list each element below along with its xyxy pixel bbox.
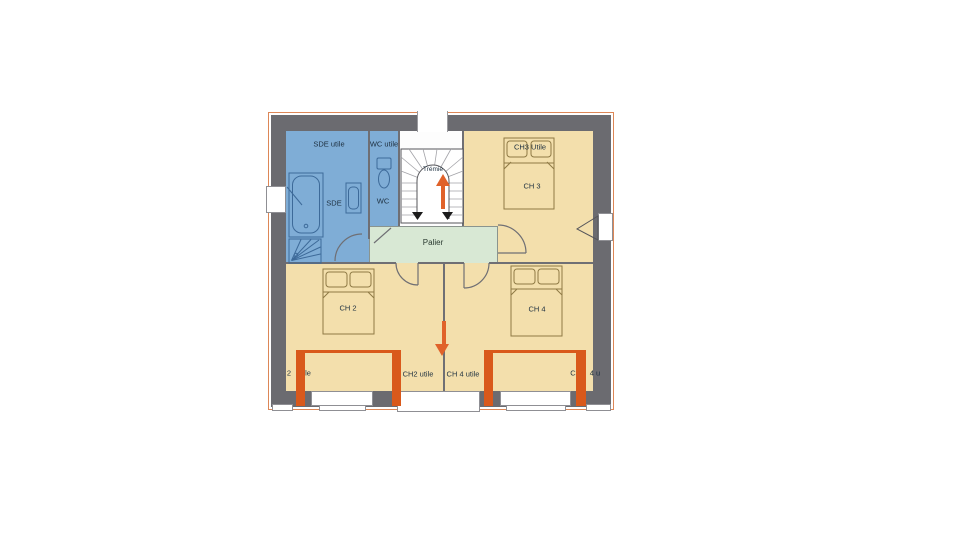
label-tremie: Trémie: [423, 167, 443, 174]
staircase: [401, 149, 463, 223]
label-wc: WC: [377, 197, 390, 205]
label-right-edge-partial-1: C: [570, 369, 575, 377]
door-ch4: [464, 263, 489, 288]
shower: [289, 239, 321, 263]
door-sde: [335, 234, 362, 261]
floorplan-canvas: SDE utile WC utile SDE WC Trémie CH3 Uti…: [0, 0, 960, 540]
label-ch3-utile: CH3 Utile: [514, 143, 546, 151]
bed-ch2: [323, 269, 374, 334]
label-ch4: CH 4: [528, 305, 545, 313]
label-wc-utile: WC utile: [370, 140, 398, 148]
bathtub: [287, 173, 323, 237]
label-ch2: CH 2: [339, 304, 356, 312]
plan-graphics: [269, 113, 613, 409]
label-left-edge-partial-2: le: [305, 369, 311, 377]
down-arrow: [435, 321, 449, 356]
label-ch2-utile: CH2 utile: [403, 370, 434, 378]
washbasin: [346, 183, 361, 213]
label-ch3: CH 3: [523, 182, 540, 190]
label-sde-utile: SDE utile: [313, 140, 344, 148]
door-ch2: [396, 263, 418, 285]
door-wc-leaf: [374, 228, 391, 243]
label-left-edge-partial-1: 2: [287, 369, 291, 377]
toilet: [377, 158, 391, 188]
door-ch3: [498, 225, 526, 253]
label-palier: Palier: [423, 239, 443, 247]
window-opening-indicator-ch3: [577, 216, 598, 240]
floor-plan: SDE utile WC utile SDE WC Trémie CH3 Uti…: [268, 112, 614, 410]
label-sde: SDE: [326, 199, 341, 207]
label-right-edge-partial-2: 4 u: [590, 369, 600, 377]
label-ch4-utile: CH 4 utile: [447, 370, 480, 378]
bed-ch4: [511, 266, 562, 336]
stair-up-arrow-shaft: [441, 186, 445, 209]
